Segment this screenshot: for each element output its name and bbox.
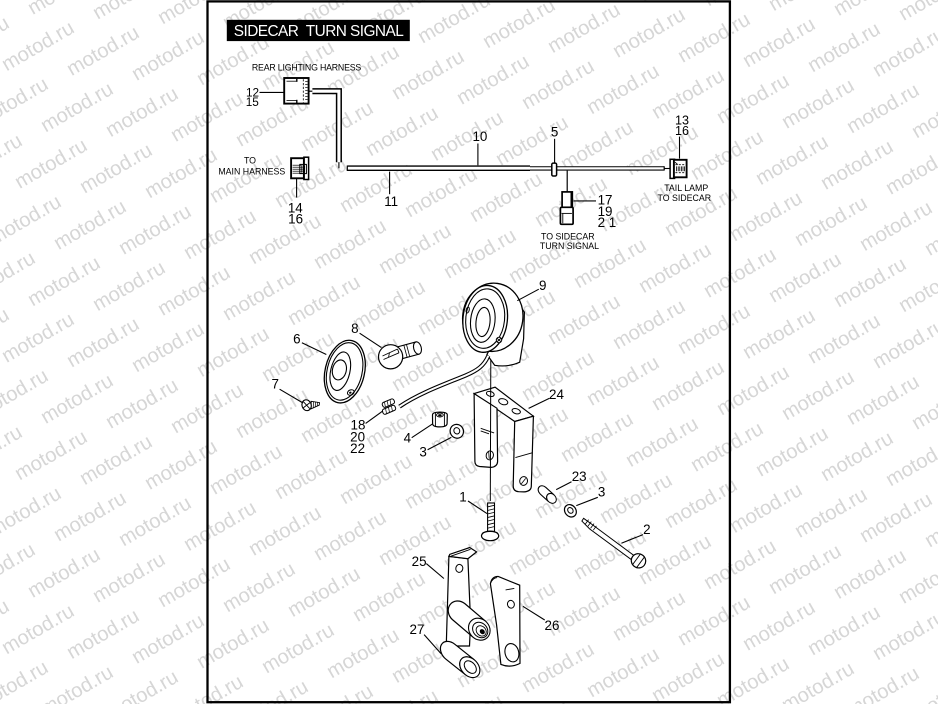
- svg-text:10: 10: [472, 129, 487, 144]
- svg-text:22: 22: [350, 441, 365, 456]
- svg-text:15: 15: [246, 95, 260, 109]
- svg-text:TO: TO: [244, 156, 256, 166]
- svg-text:TAIL LAMP: TAIL LAMP: [664, 183, 708, 193]
- svg-text:motod.ru: motod.ru: [37, 661, 117, 704]
- svg-text:TURN SIGNAL: TURN SIGNAL: [540, 241, 599, 251]
- svg-text:16: 16: [288, 212, 303, 227]
- svg-text:16: 16: [675, 124, 689, 138]
- svg-text:motod.ru: motod.ru: [778, 658, 858, 704]
- svg-text:SIDECAR TURN SIGNAL: SIDECAR TURN SIGNAL: [234, 23, 404, 40]
- svg-text:9: 9: [539, 278, 546, 293]
- svg-text:5: 5: [551, 124, 558, 139]
- svg-text:4: 4: [404, 430, 412, 445]
- svg-text:motod.ru: motod.ru: [895, 0, 938, 25]
- svg-text:REAR LIGHTING HARNESS: REAR LIGHTING HARNESS: [252, 63, 362, 73]
- svg-text:6: 6: [293, 331, 300, 346]
- svg-text:27: 27: [410, 622, 425, 637]
- svg-text:motod.ru: motod.ru: [843, 663, 923, 704]
- svg-text:TO SIDECAR: TO SIDECAR: [657, 193, 711, 203]
- svg-text:25: 25: [412, 554, 427, 569]
- svg-text:24: 24: [549, 387, 564, 402]
- svg-text:3: 3: [419, 444, 426, 459]
- svg-text:MAIN HARNESS: MAIN HARNESS: [218, 167, 285, 177]
- svg-text:1: 1: [459, 489, 466, 504]
- svg-text:7: 7: [271, 377, 278, 392]
- svg-text:3: 3: [598, 484, 605, 499]
- svg-text:23: 23: [572, 469, 587, 484]
- svg-text:2 1: 2 1: [598, 215, 617, 230]
- svg-text:motod.ru: motod.ru: [102, 666, 182, 704]
- svg-text:11: 11: [384, 194, 398, 209]
- svg-text:2: 2: [643, 522, 650, 537]
- svg-text:26: 26: [545, 618, 560, 633]
- svg-text:8: 8: [351, 321, 358, 336]
